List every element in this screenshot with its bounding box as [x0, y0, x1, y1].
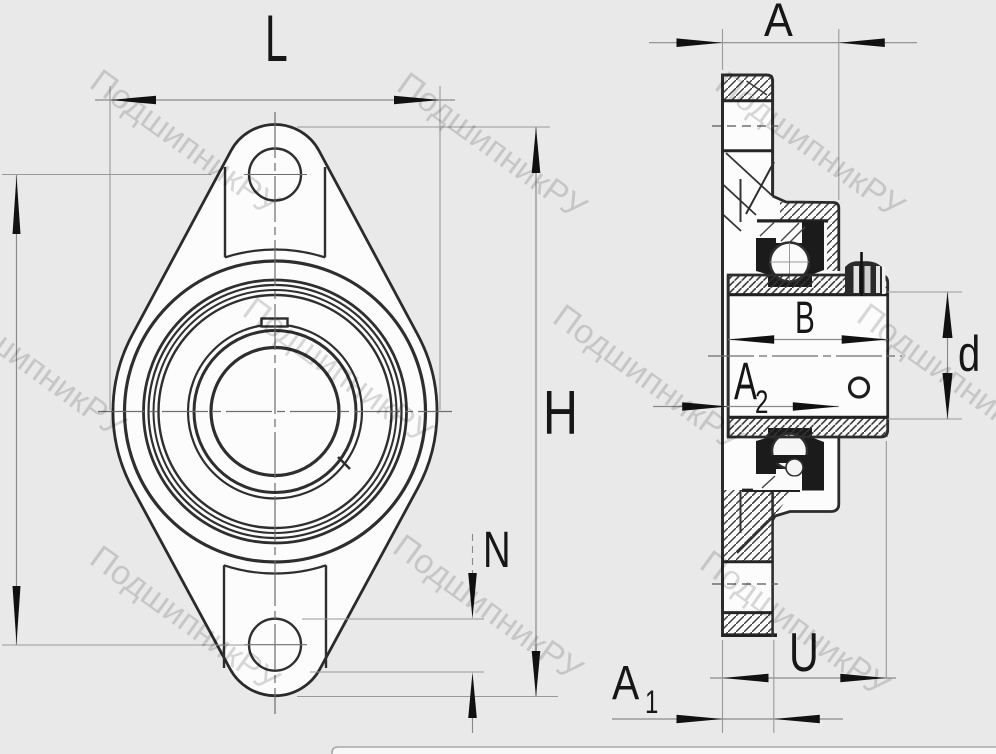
- svg-text:A: A: [734, 353, 757, 411]
- svg-text:A: A: [764, 0, 794, 46]
- svg-text:L: L: [265, 1, 288, 76]
- svg-text:N: N: [483, 521, 511, 579]
- svg-text:H: H: [543, 378, 578, 447]
- svg-text:B: B: [795, 293, 815, 344]
- svg-text:2: 2: [755, 384, 768, 420]
- svg-text:A: A: [612, 657, 639, 710]
- svg-text:1: 1: [645, 684, 658, 720]
